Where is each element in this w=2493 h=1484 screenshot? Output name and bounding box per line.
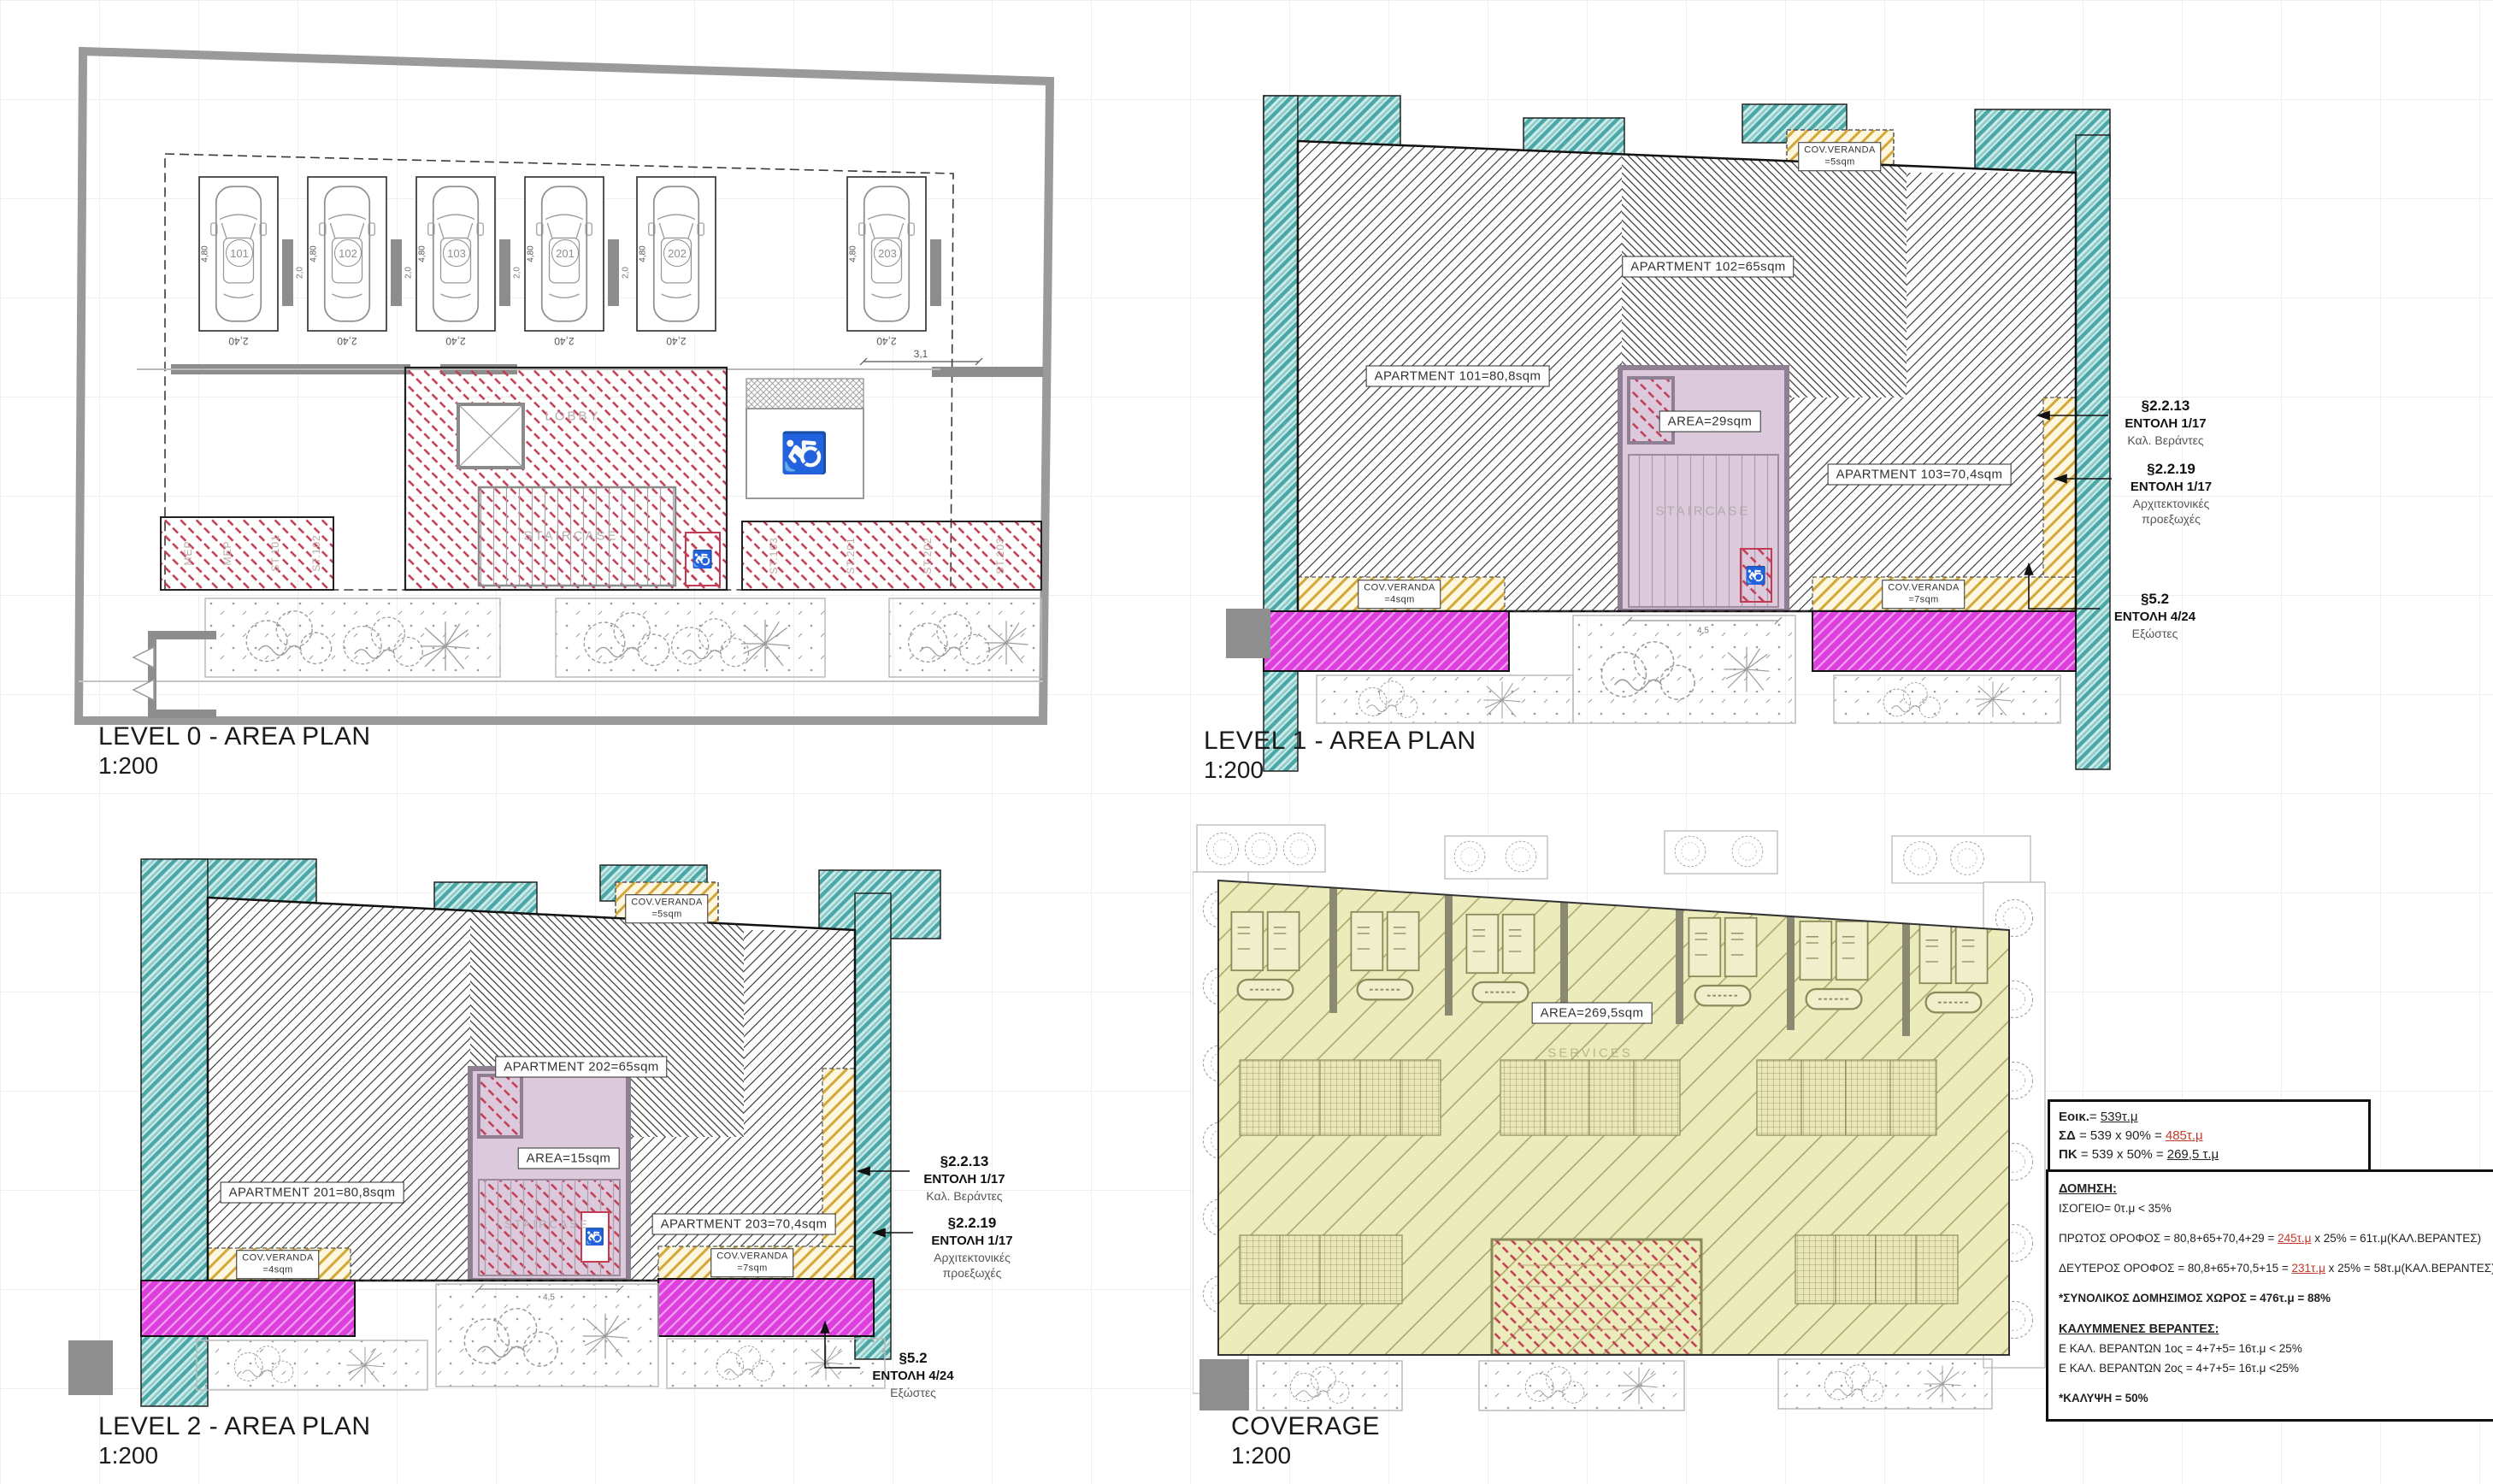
calc-verandas-first: Ε ΚΑΛ. ΒΕΡΑΝΤΩΝ 1ος = 4+7+5= 16τ.μ < 25% — [2059, 1341, 2493, 1357]
level1-title: LEVEL 1 - AREA PLAN — [1204, 727, 1476, 756]
core-dim: 4,5 — [543, 1293, 555, 1303]
balcony-left — [141, 1281, 355, 1336]
wheelchair-icon: ♿ — [1746, 565, 1767, 586]
level0-title: LEVEL 0 - AREA PLAN — [98, 722, 371, 751]
staircase-label: STAIRCASE — [504, 1218, 590, 1231]
level2-title: LEVEL 2 - AREA PLAN — [98, 1412, 371, 1441]
annotation-projections-l2: §2.2.19 ΕΝΤΟΛΗ 1/17 Αρχιτεκτονικές προεξ… — [916, 1214, 1028, 1281]
cov-veranda-top-label: COV.VERANDA =5sqm — [1798, 142, 1881, 171]
roof-area-label: AREA=269,5sqm — [1532, 1003, 1653, 1024]
coverage-scale: 1:200 — [1231, 1442, 1291, 1469]
level2-scale: 1:200 — [98, 1442, 158, 1469]
storage-label: ST.201 — [845, 537, 857, 574]
gap-dim: 2,0 — [296, 267, 305, 279]
apartment-102-label: APARTMENT 102=65sqm — [1622, 256, 1794, 278]
cov-veranda-bl-label: COV.VERANDA =4sqm — [236, 1250, 319, 1279]
storage-label: MEP — [221, 540, 233, 565]
level0-drawing — [51, 21, 1154, 786]
stall-length-dim: 4,80 — [639, 245, 648, 262]
stall-length-dim: 4,80 — [849, 245, 858, 262]
building-calc-box: ΔΟΜΗΣΗ: ΙΣΟΓΕΙΟ= 0τ.μ < 35% ΠΡΩΤΟΣ ΟΡΟΦΟ… — [2046, 1169, 2493, 1422]
calc-verandas-second: Ε ΚΑΛ. ΒΕΡΑΝΤΩΝ 2ος = 4+7+5= 16τ.μ <25% — [2059, 1361, 2493, 1377]
cov-veranda-bl-label: COV.VERANDA =4sqm — [1358, 580, 1441, 609]
site-line-sd: ΣΔ = 539 x 90% = 485τ.μ — [2059, 1127, 2360, 1145]
cov-veranda-br-label: COV.VERANDA =7sqm — [710, 1248, 793, 1277]
annotation-veranda-l2: §2.2.13 ΕΝΤΟΛΗ 1/17 Καλ. Βεράντες — [913, 1152, 1016, 1204]
site-data-box: Εοικ.= 539τ.μ ΣΔ = 539 x 90% = 485τ.μ ΠΚ… — [2048, 1099, 2371, 1172]
site-line-plot: Εοικ.= 539τ.μ — [2059, 1108, 2360, 1127]
stall-length-dim: 4,80 — [527, 245, 536, 262]
disabled-bay-hatch — [746, 379, 863, 409]
balcony-right — [658, 1279, 874, 1336]
stall-width-dim: 2,40 — [554, 335, 574, 347]
balcony-right — [1812, 611, 2076, 671]
stall-width-dim: 2,40 — [666, 335, 686, 347]
staircase-label: STAIRCASE — [524, 529, 619, 544]
storage-label: ST.103 — [768, 537, 780, 574]
apartment-203-label: APARTMENT 203=70,4sqm — [652, 1214, 836, 1235]
entrance-block — [1199, 1359, 1249, 1410]
parking-number: 102 — [334, 239, 362, 267]
level1-scale: 1:200 — [1204, 757, 1264, 784]
apartment-103-label: APARTMENT 103=70,4sqm — [1828, 464, 2012, 486]
apartment-202-label: APARTMENT 202=65sqm — [495, 1057, 667, 1078]
gap-dim: 2,0 — [513, 267, 522, 279]
annotation-balconies-l2: §5.2 ΕΝΤΟΛΗ 4/24 Εξώστες — [862, 1349, 964, 1400]
level0-plan: 101 102 103 201 202 203 2,40 2,40 2,40 2… — [51, 21, 1154, 786]
parking-number: 101 — [226, 239, 253, 267]
calc-heading: ΔΟΜΗΣΗ: — [2059, 1181, 2493, 1198]
stall-width-dim: 2,40 — [445, 335, 465, 347]
parking-number: 103 — [443, 239, 470, 267]
stall-width-dim: 2,40 — [337, 335, 357, 347]
wheelchair-icon: ♿ — [692, 549, 714, 570]
apartment-101-label: APARTMENT 101=80,8sqm — [1366, 366, 1550, 387]
coverage-title: COVERAGE — [1231, 1412, 1380, 1441]
calc-first-floor: ΠΡΩΤΟΣ ΟΡΟΦΟΣ = 80,8+65+70,4+29 = 245τ.μ… — [2059, 1231, 2493, 1247]
balcony-left — [1264, 611, 1509, 671]
services-label: SERVICES — [1547, 1046, 1633, 1061]
entrance-block — [1226, 609, 1270, 658]
gap-dim: 2,0 — [404, 267, 414, 279]
storage-label: ST.203 — [994, 537, 1006, 574]
storage-label: ST.202 — [922, 537, 934, 574]
cov-veranda-side — [2043, 397, 2076, 577]
storage-label: ST.101 — [269, 534, 281, 571]
coverage-plan: AREA=269,5sqm SERVICES COVERAGE 1:200 — [1193, 804, 2056, 1484]
stall-width-dim: 2,40 — [876, 335, 896, 347]
wheelchair-icon: ♿ — [781, 428, 828, 477]
roof-staircase — [1492, 1240, 1701, 1355]
calc-coverage: *ΚΑΛΥΨΗ = 50% — [2059, 1391, 2493, 1407]
apartment-201-label: APARTMENT 201=80,8sqm — [221, 1182, 404, 1204]
level1-plan: APARTMENT 101=80,8sqm APARTMENT 102=65sq… — [1197, 43, 2206, 786]
cov-veranda-top-label: COV.VERANDA =5sqm — [625, 894, 708, 923]
stall-length-dim: 4,80 — [418, 245, 427, 262]
level0-scale: 1:200 — [98, 752, 158, 780]
annotation-veranda-l1: §2.2.13 ΕΝΤΟΛΗ 1/17 Καλ. Βεράντες — [2110, 397, 2221, 448]
apartment-201-area — [208, 898, 470, 1281]
cov-veranda-br-label: COV.VERANDA =7sqm — [1882, 580, 1965, 609]
stall-length-dim: 4,80 — [201, 245, 210, 262]
wheelchair-icon: ♿ — [585, 1227, 605, 1247]
calc-ground: ΙΣΟΓΕΙΟ= 0τ.μ < 35% — [2059, 1201, 2493, 1217]
elevator-shaft — [479, 1075, 522, 1137]
lobby-label: LOBBY — [545, 409, 600, 424]
planters — [205, 598, 1041, 677]
storage-label: MEP — [182, 540, 194, 565]
coverage-drawing — [1193, 804, 2056, 1484]
staircase-label: STAIRCASE — [1656, 504, 1751, 519]
calc-verandas-heading: ΚΑΛΥΜΜΕΝΕΣ ΒΕΡΑΝΤΕΣ: — [2059, 1321, 2493, 1338]
planters — [1257, 1359, 1992, 1410]
parking-number: 201 — [551, 239, 579, 267]
storage-label: ST.102 — [310, 534, 322, 571]
parking-number: 203 — [874, 239, 901, 267]
calc-total: *ΣΥΝΟΛΙΚΟΣ ΔΟΜΗΣΙΜΟΣ ΧΩΡΟΣ = 476τ.μ = 88… — [2059, 1291, 2493, 1307]
drawing-sheet: 101 102 103 201 202 203 2,40 2,40 2,40 2… — [0, 0, 2493, 1484]
stall-length-dim: 4,80 — [309, 245, 319, 262]
site-line-pk: ΠΚ = 539 x 50% = 269,5 τ.μ — [2059, 1145, 2360, 1164]
core-area-label: AREA=29sqm — [1659, 411, 1761, 433]
gap-dim: 2,0 — [622, 267, 631, 279]
core-dim: 4,5 — [1697, 627, 1709, 636]
annotation-projections-l1: §2.2.19 ΕΝΤΟΛΗ 1/17 Αρχιτεκτονικές προεξ… — [2113, 460, 2229, 527]
stall-width-dim: 2,40 — [228, 335, 248, 347]
parking-number: 202 — [663, 239, 691, 267]
annotation-balconies-l1: §5.2 ΕΝΤΟΛΗ 4/24 Εξώστες — [2101, 590, 2208, 641]
calc-second-floor: ΔΕΥΤΕΡΟΣ ΟΡΟΦΟΣ = 80,8+65+70,5+15 = 231τ… — [2059, 1261, 2493, 1277]
core-area-label: AREA=15sqm — [518, 1148, 620, 1169]
entrance-block — [68, 1340, 113, 1395]
aisle-dim: 3,1 — [914, 348, 928, 360]
